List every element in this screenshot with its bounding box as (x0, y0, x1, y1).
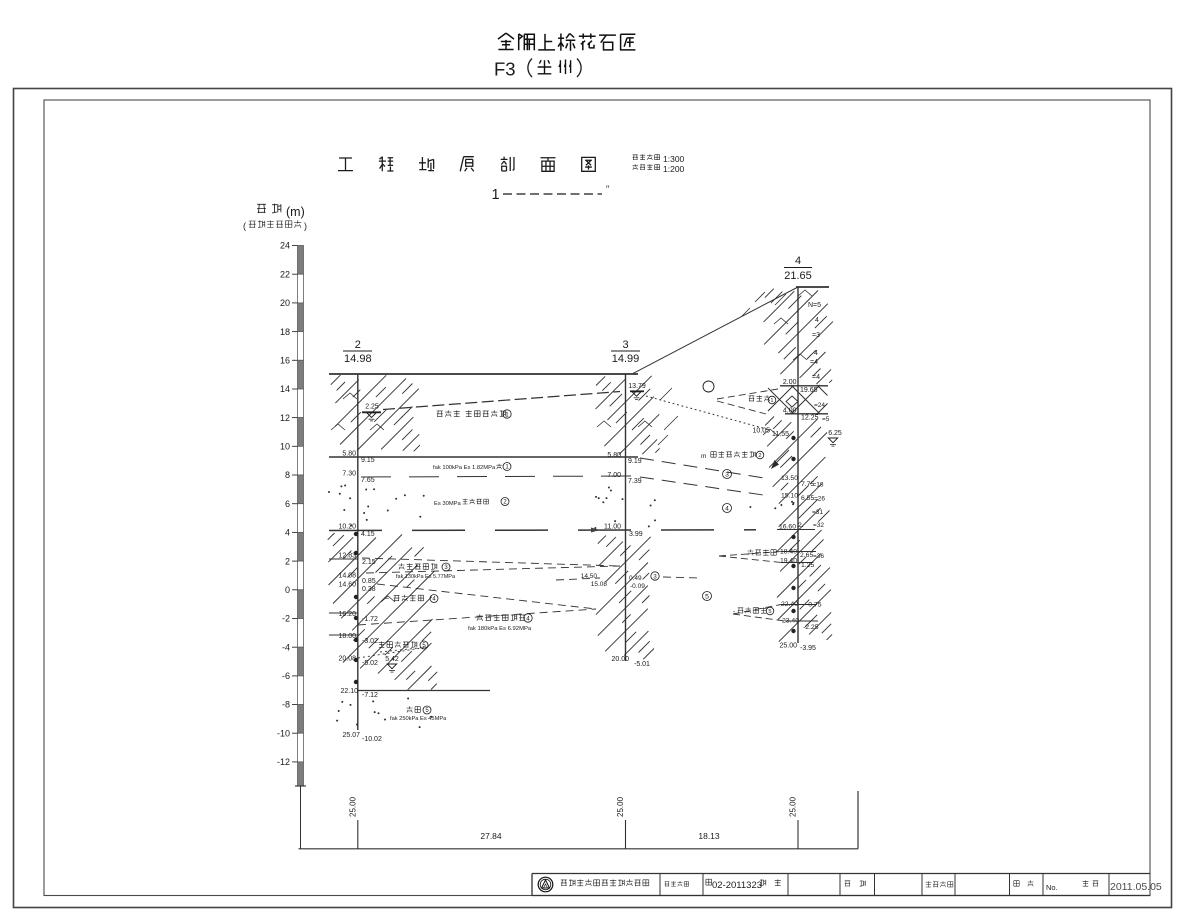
svg-text:fak 100kPa Es 1.82MPa: fak 100kPa Es 1.82MPa (433, 465, 496, 471)
svg-text:7.65: 7.65 (361, 477, 375, 484)
svg-text:-5.01: -5.01 (634, 661, 650, 668)
svg-text:12: 12 (280, 413, 290, 423)
svg-text:24: 24 (280, 241, 290, 251)
svg-text:-6: -6 (282, 671, 290, 681)
svg-text:18.40: 18.40 (780, 549, 797, 556)
svg-text:-8: -8 (282, 700, 290, 710)
svg-text:23.40: 23.40 (782, 618, 799, 625)
svg-text:9.19: 9.19 (628, 458, 642, 465)
svg-text:12.25: 12.25 (801, 415, 819, 422)
svg-text:13.50: 13.50 (781, 475, 798, 482)
svg-text:(: ( (243, 221, 246, 231)
svg-text:11.00: 11.00 (604, 524, 621, 531)
svg-text:22.40: 22.40 (781, 601, 798, 608)
svg-text:18.00: 18.00 (338, 633, 356, 640)
svg-text:14.99: 14.99 (612, 353, 640, 365)
svg-text:16.60: 16.60 (779, 524, 796, 531)
svg-text:No.: No. (1046, 883, 1058, 892)
svg-text:25.00: 25.00 (348, 796, 357, 817)
svg-text:5.42: 5.42 (385, 656, 399, 663)
svg-text:4: 4 (815, 317, 819, 324)
svg-text:4: 4 (526, 615, 530, 622)
svg-text:27.84: 27.84 (480, 831, 502, 841)
svg-text:-1.72: -1.72 (362, 616, 378, 623)
svg-text:15.10: 15.10 (781, 493, 798, 500)
svg-text:2.: 2. (798, 522, 804, 529)
svg-text:18.13: 18.13 (698, 831, 720, 841)
svg-text:25.00: 25.00 (779, 643, 797, 650)
svg-text:19.40: 19.40 (780, 558, 797, 565)
svg-text:02-2011323: 02-2011323 (712, 880, 762, 891)
svg-text:10.20: 10.20 (338, 524, 356, 531)
svg-text:2: 2 (758, 453, 761, 459)
svg-text:5: 5 (768, 609, 771, 615)
svg-text:0.85: 0.85 (362, 578, 376, 585)
svg-text:6.55: 6.55 (801, 495, 814, 502)
svg-text:20.08: 20.08 (338, 656, 356, 663)
svg-text:~: ~ (385, 596, 389, 603)
svg-text:2.25: 2.25 (365, 404, 379, 411)
svg-text:=24: =24 (814, 402, 825, 409)
svg-text:9.15: 9.15 (361, 457, 375, 464)
svg-text:6.25: 6.25 (828, 430, 842, 437)
svg-text:=4: =4 (810, 359, 818, 366)
svg-text:fak 130kPa Es 5.77MPa: fak 130kPa Es 5.77MPa (396, 574, 456, 580)
svg-text:1:300: 1:300 (663, 154, 685, 164)
svg-text:-2.25: -2.25 (803, 624, 819, 631)
svg-text:19.65: 19.65 (800, 387, 818, 394)
svg-text:1: 1 (505, 411, 509, 418)
svg-text:=3: =3 (812, 332, 820, 339)
svg-text:14.98: 14.98 (344, 353, 372, 365)
svg-text:3: 3 (653, 573, 657, 580)
svg-text:11.55: 11.55 (772, 431, 789, 438)
svg-text:7.30: 7.30 (342, 471, 356, 478)
svg-text:2.65: 2.65 (800, 552, 813, 559)
svg-text:2.15: 2.15 (362, 559, 376, 566)
svg-text:5.80: 5.80 (342, 451, 356, 458)
svg-text:2011.05.05: 2011.05.05 (1110, 881, 1162, 893)
svg-text:25.00: 25.00 (789, 796, 798, 817)
svg-text:13.79: 13.79 (628, 383, 646, 390)
svg-text:6: 6 (285, 499, 290, 509)
svg-text:-4: -4 (282, 642, 290, 652)
svg-text:4: 4 (814, 350, 818, 357)
svg-text:2: 2 (355, 339, 361, 351)
svg-text:2.00: 2.00 (783, 379, 797, 386)
svg-text:10.05: 10.05 (752, 428, 770, 435)
svg-text:): ) (304, 221, 307, 231)
svg-text:N=5: N=5 (808, 302, 821, 309)
svg-text:-10.02: -10.02 (362, 736, 382, 743)
svg-text:(m): (m) (286, 205, 305, 219)
svg-text:7.00: 7.00 (607, 472, 621, 479)
svg-text:-3.02: -3.02 (362, 638, 378, 645)
svg-text:10: 10 (280, 442, 290, 452)
svg-text:1: 1 (770, 398, 773, 404)
svg-text:8: 8 (285, 470, 290, 480)
svg-text:=4: =4 (812, 374, 820, 381)
svg-text:5.80: 5.80 (607, 452, 621, 459)
svg-text:0.38: 0.38 (362, 586, 376, 593)
svg-text:3: 3 (725, 471, 729, 478)
svg-text:20: 20 (280, 298, 290, 308)
svg-text:12.83: 12.83 (338, 553, 356, 560)
svg-text:-3.95: -3.95 (800, 645, 816, 652)
svg-text:=31: =31 (812, 509, 823, 516)
svg-text:m: m (701, 453, 706, 460)
svg-text:-0.75: -0.75 (806, 602, 822, 609)
svg-text:14.08: 14.08 (338, 573, 356, 580)
svg-text:4.15: 4.15 (361, 531, 375, 538)
svg-text:4.00: 4.00 (783, 408, 797, 415)
svg-text:3: 3 (622, 339, 628, 351)
svg-text:5: 5 (705, 593, 709, 600)
svg-text:14.60: 14.60 (338, 582, 356, 589)
svg-text:1:200: 1:200 (663, 164, 685, 174)
svg-text:=32: =32 (813, 522, 824, 529)
svg-text:fak 250kPa Es 45MPa: fak 250kPa Es 45MPa (390, 716, 447, 722)
svg-text:2: 2 (285, 556, 290, 566)
svg-text:4: 4 (725, 505, 729, 512)
svg-text:22.10: 22.10 (340, 688, 358, 695)
svg-text:fak 180kPa Es 6.92MPa: fak 180kPa Es 6.92MPa (468, 626, 532, 632)
svg-text:20.00: 20.00 (611, 656, 629, 663)
svg-text:F3: F3 (494, 59, 516, 80)
svg-text:1: 1 (492, 187, 500, 203)
svg-text:1.25: 1.25 (801, 562, 814, 569)
svg-text:=36: =36 (813, 553, 824, 560)
svg-text:-12: -12 (277, 757, 290, 767)
svg-text:=18: =18 (813, 482, 824, 489)
svg-text:0: 0 (285, 585, 290, 595)
svg-text:3.99: 3.99 (629, 531, 643, 538)
svg-text:Es 30MPa: Es 30MPa (434, 501, 462, 507)
svg-text:18: 18 (280, 327, 290, 337)
svg-text:15.08: 15.08 (591, 581, 608, 588)
svg-text:-0.09: -0.09 (630, 583, 645, 590)
svg-text:22: 22 (280, 269, 290, 279)
svg-text:-7.12: -7.12 (362, 692, 378, 699)
svg-text:0.49: 0.49 (629, 575, 642, 582)
svg-text:14: 14 (280, 384, 290, 394)
svg-text:16.20: 16.20 (338, 611, 356, 618)
svg-text:-10: -10 (277, 728, 290, 738)
svg-text:=5: =5 (822, 416, 830, 423)
svg-text:=26: =26 (814, 496, 825, 503)
svg-text:16: 16 (280, 356, 290, 366)
svg-text:4: 4 (795, 255, 801, 267)
svg-text:-2: -2 (282, 614, 290, 624)
svg-text:21.65: 21.65 (784, 270, 812, 282)
svg-text:25.07: 25.07 (342, 732, 360, 739)
svg-text:7.39: 7.39 (628, 478, 642, 485)
svg-text:25.00: 25.00 (616, 796, 625, 817)
svg-text:4: 4 (285, 528, 290, 538)
svg-text:′′: ′′ (606, 184, 610, 194)
svg-text:-5.02: -5.02 (362, 660, 378, 667)
